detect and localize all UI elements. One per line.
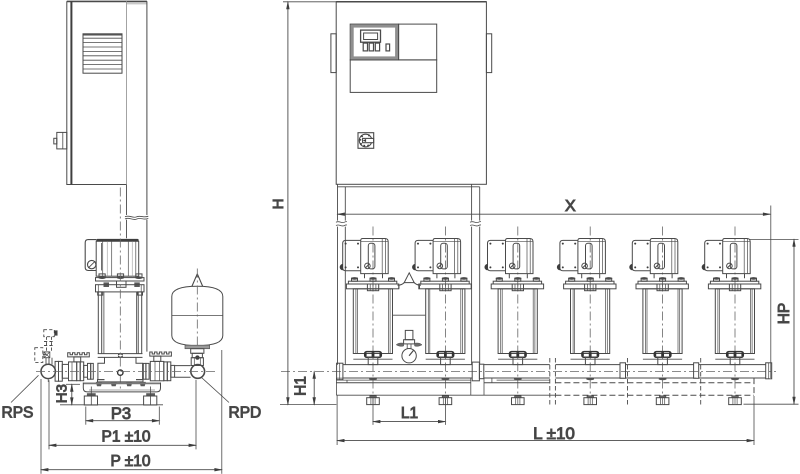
svg-text:L1: L1 <box>401 405 418 422</box>
svg-text:P3: P3 <box>111 405 131 423</box>
svg-text:X: X <box>565 198 576 215</box>
svg-text:P1 ±10: P1 ±10 <box>101 429 150 446</box>
svg-text:RPD: RPD <box>229 405 262 422</box>
svg-text:HP: HP <box>776 303 793 325</box>
svg-text:H1: H1 <box>293 376 310 396</box>
svg-text:P ±10: P ±10 <box>110 453 150 470</box>
svg-text:L ±10: L ±10 <box>533 424 575 443</box>
svg-text:RPS: RPS <box>2 405 34 422</box>
svg-text:H: H <box>270 199 287 210</box>
svg-text:H3: H3 <box>53 384 70 403</box>
